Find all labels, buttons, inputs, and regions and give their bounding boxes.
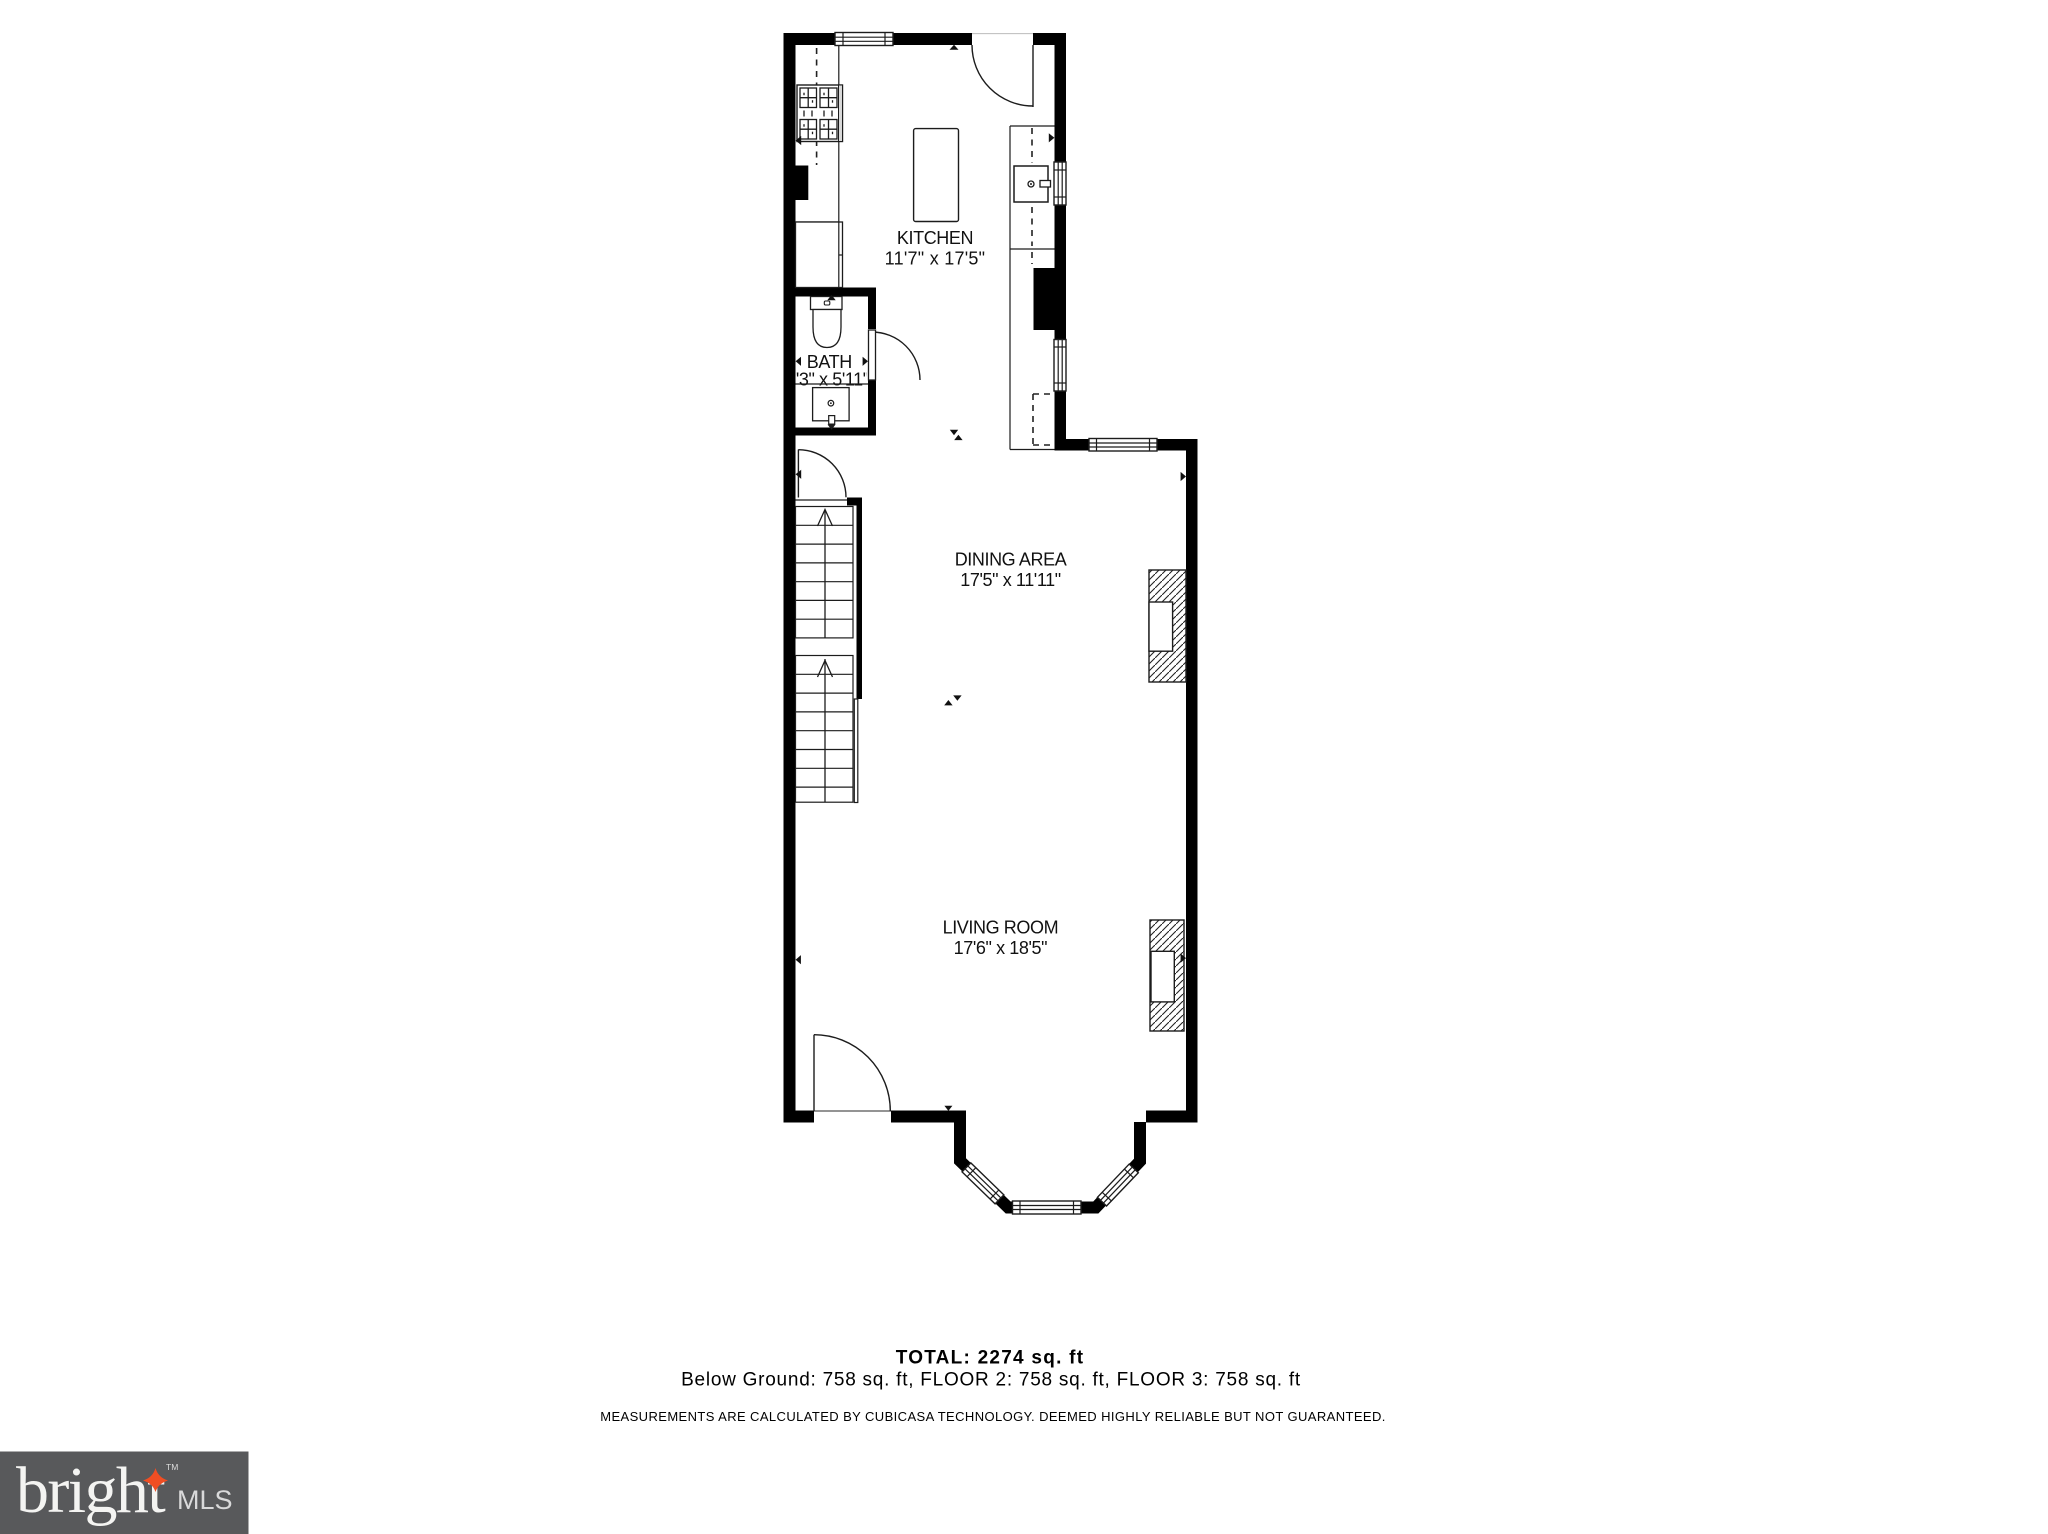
- svg-text:KITCHEN: KITCHEN: [897, 228, 973, 248]
- svg-text:MLS: MLS: [177, 1485, 233, 1515]
- svg-text:bright: bright: [16, 1454, 165, 1527]
- svg-text:17'6" x 18'5": 17'6" x 18'5": [954, 938, 1048, 958]
- svg-text:3'3" x 5'11": 3'3" x 5'11": [786, 369, 869, 389]
- svg-text:TM: TM: [166, 1462, 178, 1472]
- svg-text:DINING AREA: DINING AREA: [955, 549, 1067, 569]
- svg-text:Below Ground: 758 sq. ft, FLOO: Below Ground: 758 sq. ft, FLOOR 2: 758 s…: [681, 1370, 1301, 1391]
- svg-text:11'7" x 17'5": 11'7" x 17'5": [885, 249, 986, 269]
- svg-text:17'5" x 11'11": 17'5" x 11'11": [960, 570, 1060, 590]
- svg-text:TOTAL: 2274 sq. ft: TOTAL: 2274 sq. ft: [896, 1348, 1085, 1369]
- svg-text:MEASUREMENTS ARE CALCULATED BY: MEASUREMENTS ARE CALCULATED BY CUBICASA …: [600, 1409, 1386, 1424]
- svg-text:BATH: BATH: [807, 352, 852, 372]
- svg-text:LIVING ROOM: LIVING ROOM: [943, 918, 1059, 938]
